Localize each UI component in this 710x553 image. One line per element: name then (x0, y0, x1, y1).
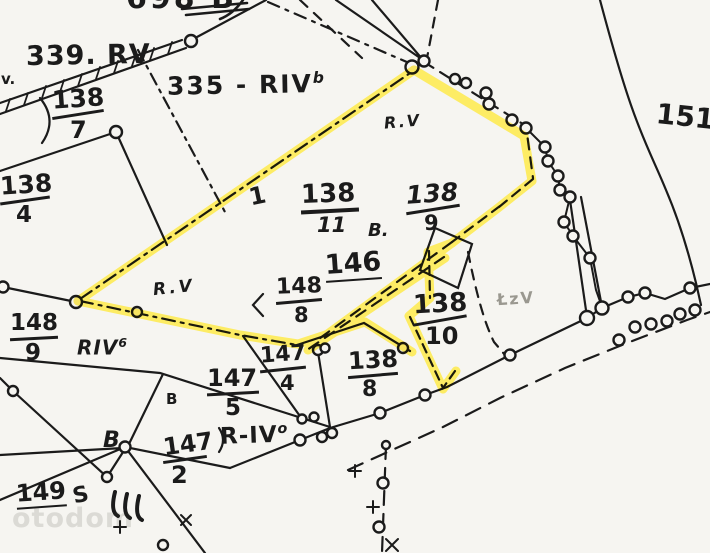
label-v-edge: v. (1, 72, 15, 87)
road-dashed (348, 312, 710, 470)
curve-bracket-left (40, 98, 50, 143)
label-138-4: 138 4 (0, 172, 52, 227)
boundary-dashed-top2 (300, 0, 362, 58)
label-b-small: B (166, 392, 177, 407)
label-lzv: ŁzV (496, 290, 535, 309)
label-r-iv-sup: o (277, 421, 288, 437)
map-canvas: 698 B 339. RV v. 138 7 335 - RIVb 138 4 … (0, 0, 710, 553)
label-138-9: 138 9 (406, 181, 460, 234)
label-148-8: 148 8 (276, 276, 322, 326)
label-147-5: 147 5 (207, 366, 259, 420)
curve-151 (600, 0, 701, 305)
label-147-4: 147 4 (260, 344, 306, 394)
label-138-11: 138 11 (301, 181, 359, 236)
bracket-148 (253, 294, 263, 316)
boundary-dashed-top3 (427, 0, 438, 58)
vertical-dashed (382, 445, 386, 553)
label-rv-top: R.V (383, 112, 421, 131)
label-148-9: 148 9 (10, 312, 58, 365)
label-335-sup: b (313, 69, 326, 87)
label-147-2: 147 2 (163, 432, 213, 487)
label-335-riv: 335 - RIVb (167, 71, 326, 99)
survey-crosses (114, 465, 398, 551)
label-riv6: RIV6 (77, 337, 128, 358)
label-339-rv: 339. RV (26, 41, 151, 70)
watermark: otodom (12, 503, 134, 534)
label-b-dot: B. (368, 222, 389, 240)
label-riv6-sup: 6 (118, 335, 128, 350)
label-rv-mid: R.V (152, 278, 196, 299)
label-r-iv: R-IVo (220, 422, 289, 449)
label-138-7: 138 7 (52, 86, 104, 142)
label-top-cut: 698 B (126, 0, 237, 14)
boundary-dashdot-top (268, 2, 416, 66)
label-138-8: 138 8 (348, 348, 398, 401)
label-b-big: B (103, 430, 120, 452)
left-link-line (3, 287, 76, 302)
label-151: 151 (655, 100, 710, 134)
label-138-10: 138 10 (413, 291, 467, 348)
label-146: 146 (324, 248, 382, 283)
